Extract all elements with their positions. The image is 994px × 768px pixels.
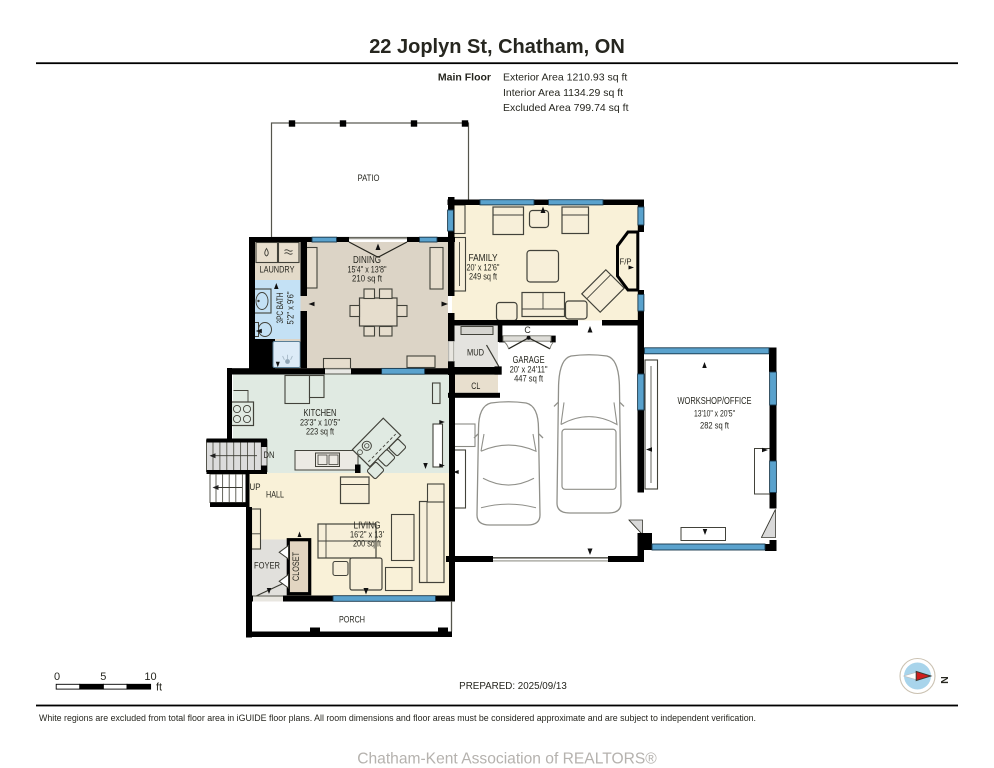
svg-text:200 sq ft: 200 sq ft	[353, 539, 381, 549]
svg-text:CL: CL	[471, 381, 480, 391]
svg-text:Main Floor: Main Floor	[438, 72, 491, 84]
svg-text:WORKSHOP/OFFICE: WORKSHOP/OFFICE	[678, 396, 752, 407]
svg-text:PREPARED: 2025/09/13: PREPARED: 2025/09/13	[459, 681, 567, 692]
svg-text:0: 0	[54, 671, 60, 683]
svg-text:HALL: HALL	[266, 490, 284, 500]
svg-text:3PC BATH: 3PC BATH	[275, 293, 285, 324]
svg-text:CLOSET: CLOSET	[291, 552, 301, 581]
svg-text:249 sq ft: 249 sq ft	[469, 272, 497, 282]
svg-text:282 sq ft: 282 sq ft	[700, 421, 729, 431]
svg-text:13'10" x 20'5": 13'10" x 20'5"	[694, 409, 735, 419]
svg-text:C: C	[524, 325, 531, 335]
svg-text:F/P: F/P	[620, 258, 632, 267]
svg-text:Chatham-Kent Association of RE: Chatham-Kent Association of REALTORS®	[357, 751, 657, 768]
svg-text:Interior Area 1134.29 sq ft: Interior Area 1134.29 sq ft	[503, 87, 623, 99]
svg-text:UP: UP	[250, 482, 261, 492]
svg-text:PORCH: PORCH	[339, 615, 365, 625]
svg-text:ft: ft	[156, 682, 162, 694]
svg-text:MUD: MUD	[467, 348, 484, 358]
svg-text:447 sq ft: 447 sq ft	[514, 374, 543, 384]
svg-text:5'2" x 9'6": 5'2" x 9'6"	[286, 292, 296, 325]
svg-text:223 sq ft: 223 sq ft	[306, 427, 334, 437]
svg-text:DN: DN	[264, 450, 275, 460]
svg-text:Exterior Area 1210.93 sq ft: Exterior Area 1210.93 sq ft	[503, 72, 627, 84]
svg-text:10: 10	[144, 671, 156, 683]
svg-text:210 sq ft: 210 sq ft	[352, 274, 382, 284]
svg-text:N: N	[938, 676, 950, 684]
svg-text:Excluded Area 799.74 sq ft: Excluded Area 799.74 sq ft	[503, 102, 629, 114]
svg-text:LAUNDRY: LAUNDRY	[260, 265, 295, 275]
svg-text:5: 5	[100, 671, 106, 683]
svg-text:PATIO: PATIO	[358, 173, 380, 183]
svg-text:White regions are excluded fro: White regions are excluded from total fl…	[39, 713, 756, 723]
svg-text:FOYER: FOYER	[254, 561, 280, 571]
svg-text:22 Joplyn St, Chatham, ON: 22 Joplyn St, Chatham, ON	[369, 36, 625, 58]
